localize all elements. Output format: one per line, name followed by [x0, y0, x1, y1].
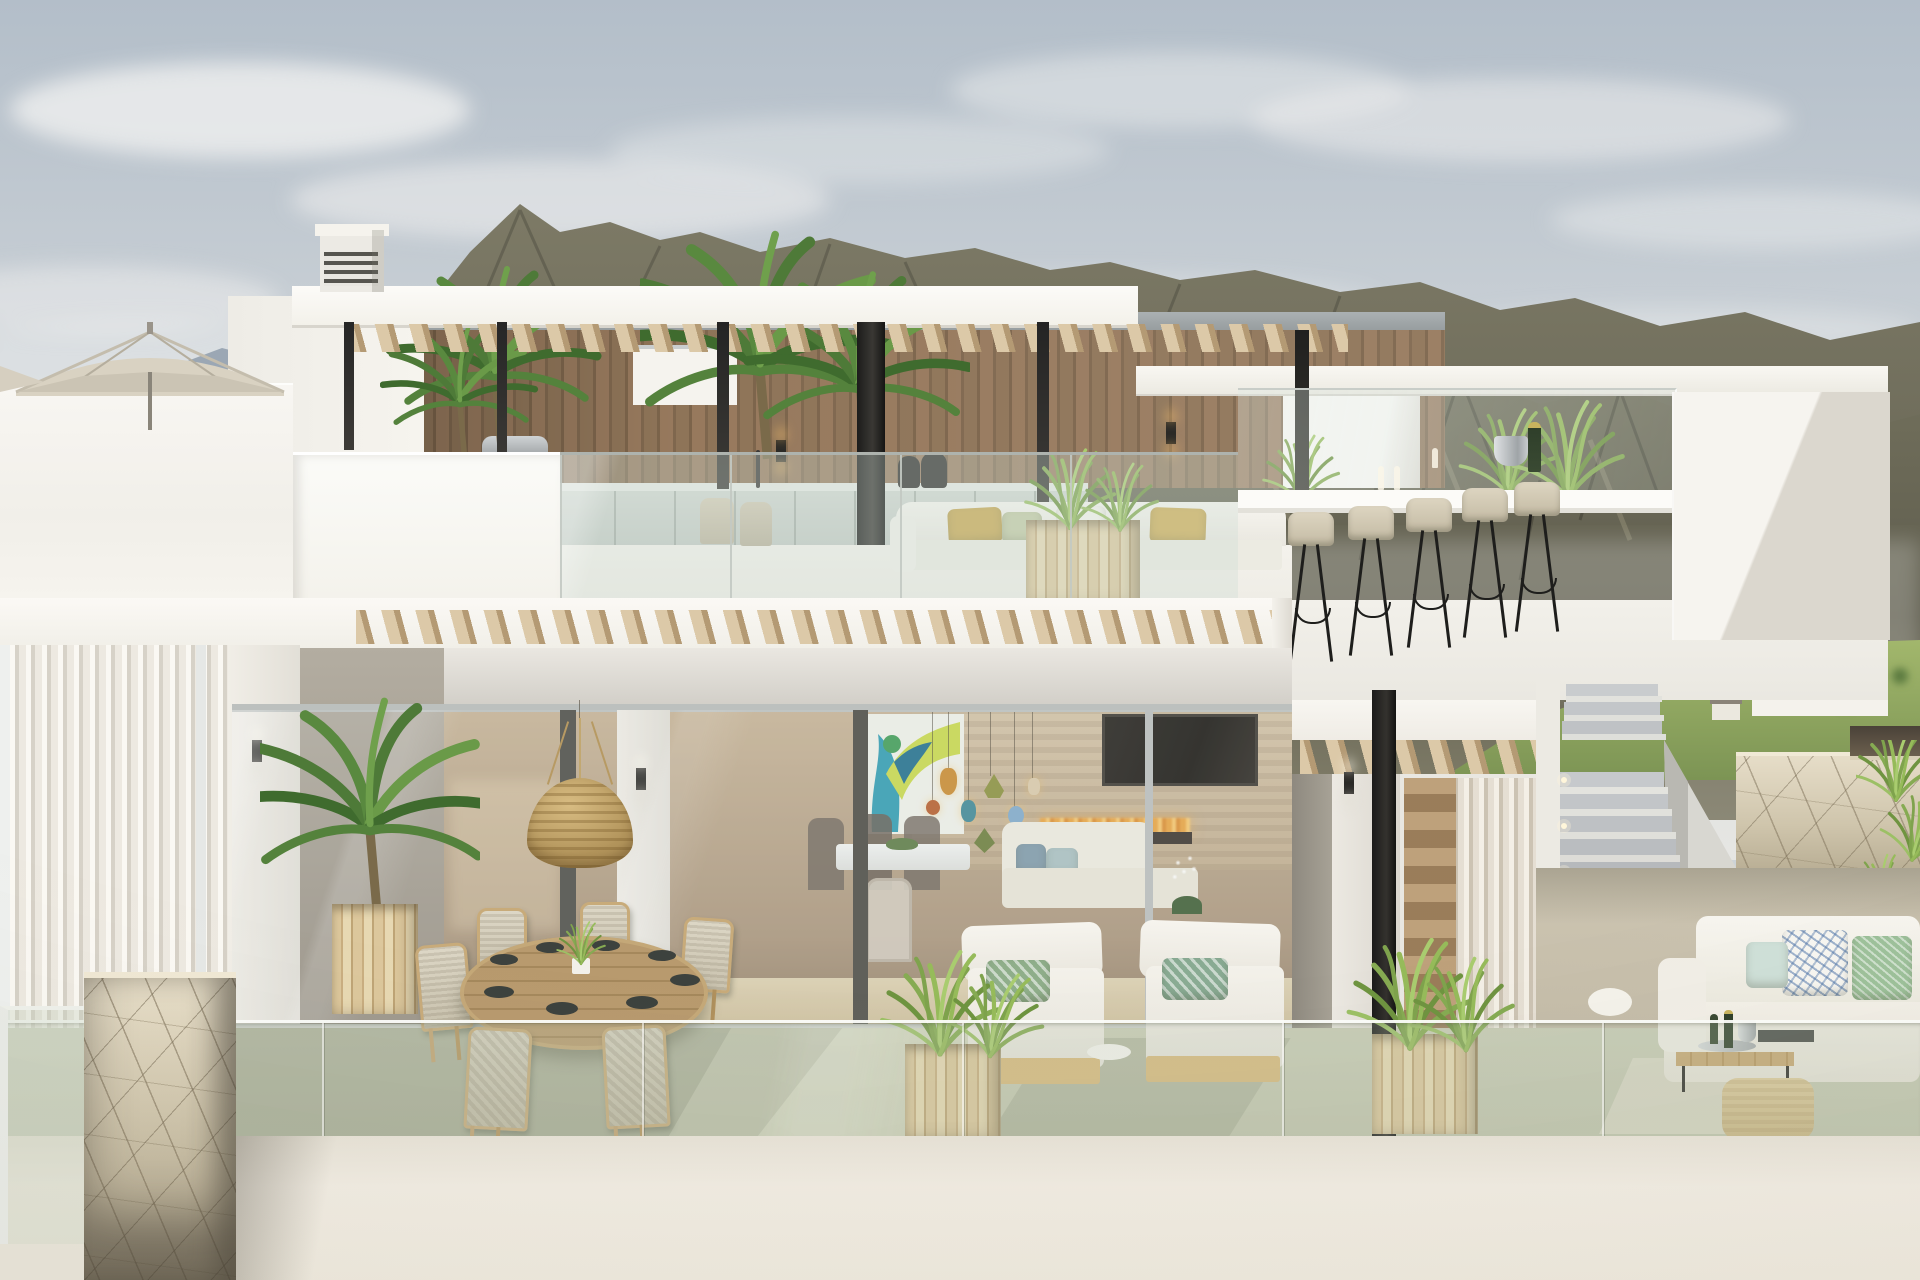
chimney-louvers [324, 252, 378, 286]
stool-seat [1406, 498, 1452, 532]
outdoor-pillow-green-pattern [1852, 936, 1912, 1000]
wicker-pendant-lamp [527, 700, 633, 868]
stone-corner-pillar [84, 972, 236, 1280]
stool-seat [1348, 506, 1394, 540]
main-brise-soleil-row [356, 610, 1292, 644]
plate-8 [484, 986, 514, 998]
pergola-column-1 [344, 322, 354, 450]
right-wing-fascia [1292, 700, 1544, 740]
upper-steps [1562, 684, 1666, 740]
stool-seat [1514, 482, 1560, 516]
glass-joint [962, 1023, 964, 1139]
champagne-bottle [1528, 422, 1541, 472]
rooftop-parapet [293, 452, 560, 618]
glass-joint [1282, 1023, 1284, 1139]
stool-seat [1462, 488, 1508, 522]
wall-sconce-wood-right [1166, 422, 1176, 444]
outdoor-pillow-teal [1746, 942, 1788, 988]
villa-render-scene [0, 0, 1920, 1280]
left-glass-return-base [0, 1244, 86, 1280]
stool-seat [1288, 512, 1334, 546]
lamp-rope-left [547, 721, 569, 784]
champagne-flute-b [1394, 466, 1400, 490]
champagne-flute-c [1432, 448, 1438, 468]
lamp-rope-mid [579, 718, 581, 782]
right-deck-edge [1752, 700, 1888, 716]
right-wing-wall [1672, 392, 1890, 640]
plate-6 [626, 996, 658, 1009]
patio-umbrella [0, 320, 300, 432]
outdoor-pillow-blue-pattern [1782, 930, 1848, 996]
lounger-right-cushion [1162, 958, 1228, 1000]
lamp-dome [527, 778, 633, 868]
bar-counter [1238, 490, 1672, 513]
wall-sconce-right-pier [1344, 772, 1354, 794]
pergola-roof-slab [292, 286, 1138, 328]
chimney-vent [320, 230, 384, 292]
rooftop-glass-railing [560, 452, 1238, 603]
champagne-flute-a [1378, 466, 1384, 490]
lamp-rope-right [591, 721, 613, 784]
plate-1 [490, 954, 518, 965]
glass-joint [1602, 1023, 1604, 1139]
parapet-shadow-right-of-pillar [236, 1136, 346, 1280]
plate-5 [670, 974, 700, 986]
ice-bucket [1494, 436, 1528, 466]
small-white-table [1588, 988, 1632, 1016]
table-centre-plant [546, 918, 616, 966]
chimney-side-shade [372, 230, 384, 292]
glass-joint [642, 1023, 644, 1139]
front-glass-balustrade [0, 1020, 1920, 1139]
plate-7 [546, 1002, 578, 1015]
plate-4 [648, 950, 676, 961]
pergola-column-2 [497, 322, 507, 472]
glass-joint [322, 1023, 324, 1139]
